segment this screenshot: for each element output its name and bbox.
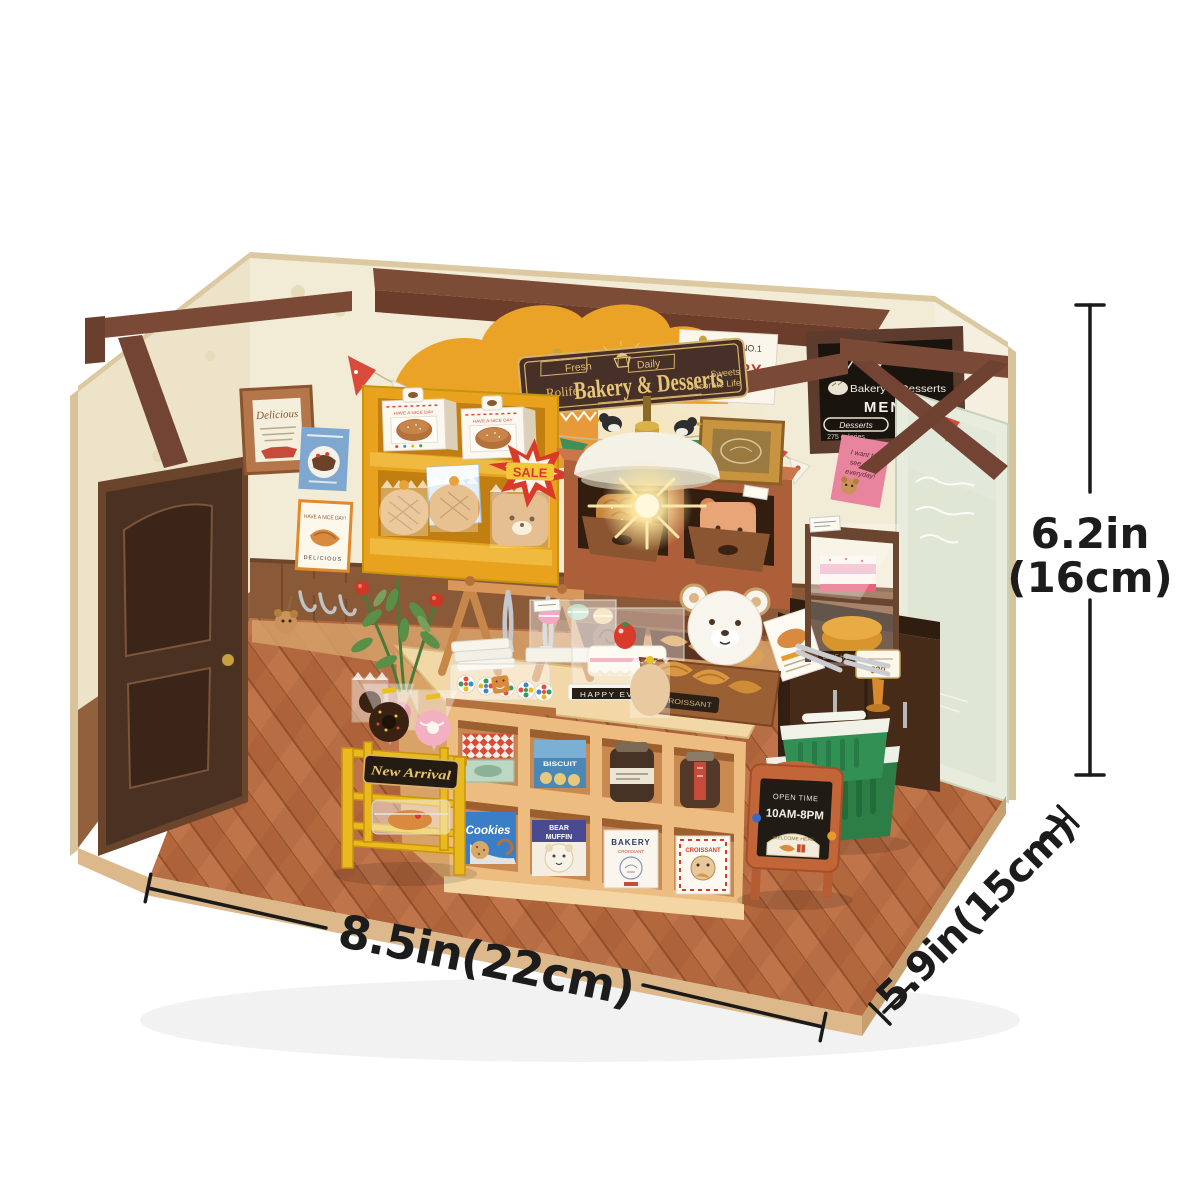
- jam-jar: [610, 742, 654, 802]
- left-wall-edge: [70, 390, 78, 856]
- delicious-title: Delicious: [255, 408, 299, 422]
- biscuit-box: BISCUIT: [534, 740, 586, 788]
- bakery-sub-label: CROISSANT: [618, 849, 645, 854]
- height-dimension-line1: 6.2in: [1031, 509, 1150, 558]
- bakery-shelf: HAVE A NICE DAY HAVE A NICE DAY FRESH SA…: [363, 386, 580, 585]
- jam-jar: [680, 752, 720, 808]
- bagged-loaf: [630, 656, 670, 718]
- sign-daily: Daily: [636, 357, 661, 371]
- cabinet-handle: [903, 702, 907, 728]
- biscuit-label: BISCUIT: [543, 761, 577, 768]
- miniature-bakery-scene: Delicious HAVE A NICE DAY! DELICIOUS Bak…: [0, 0, 1200, 1200]
- menu-pill: Desserts: [839, 420, 873, 430]
- cart-plaque: New Arrival: [363, 755, 459, 789]
- gingerbread-sticker: [491, 675, 510, 694]
- poster-sweet-cake: [298, 427, 349, 491]
- bear-muffin-box: BEAR MUFFIN: [532, 820, 586, 876]
- muffin-label: MUFFIN: [546, 834, 572, 841]
- price-card: [810, 516, 841, 532]
- croissant-box-label: CROISSANT: [685, 848, 721, 854]
- product-photo: Delicious HAVE A NICE DAY! DELICIOUS Bak…: [0, 0, 1200, 1200]
- height-dimension-line2: (16cm): [1007, 553, 1173, 602]
- sign-fresh: Fresh: [564, 360, 592, 374]
- bagged-bun: [428, 476, 480, 532]
- cookies-box: Cookies: [460, 812, 516, 864]
- bear-label: BEAR: [549, 825, 569, 832]
- poster-nice-day: HAVE A NICE DAY! DELICIOUS: [296, 501, 351, 572]
- label-card: [534, 599, 561, 612]
- bagged-bun: [379, 480, 429, 536]
- cart-clamshell: [372, 800, 450, 834]
- sale-label: SALE: [512, 464, 548, 480]
- bakery-label: BAKERY: [611, 838, 650, 847]
- croissant-box: CROISSANT: [676, 836, 730, 894]
- cookies-label: Cookies: [466, 825, 511, 837]
- bear-toast: [490, 484, 550, 548]
- entrance-door: [98, 456, 248, 856]
- bakery-box: BAKERY CROISSANT: [604, 830, 658, 888]
- door-knob: [222, 654, 234, 666]
